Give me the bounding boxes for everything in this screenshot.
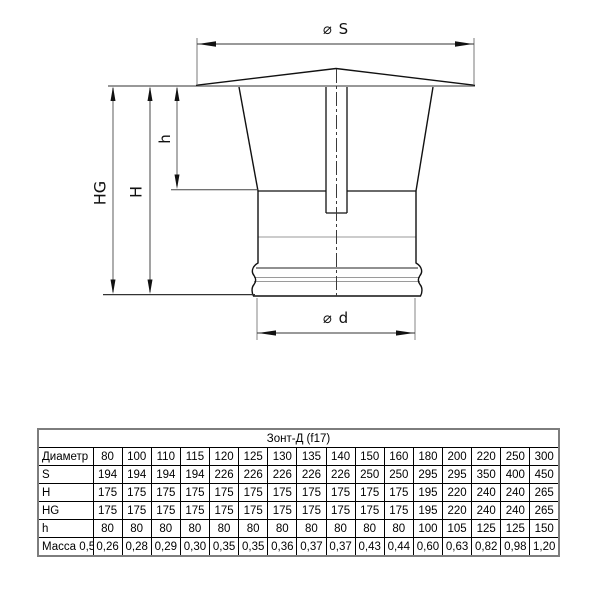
cell-value: 100 — [413, 520, 442, 538]
cell-value: 150 — [355, 448, 384, 466]
cell-value: 175 — [151, 484, 180, 502]
cell-value: 105 — [443, 520, 472, 538]
cell-value: 160 — [384, 448, 413, 466]
cell-value: 110 — [151, 448, 180, 466]
cell-value: 0,35 — [239, 538, 268, 557]
cell-value: 175 — [326, 502, 355, 520]
cell-value: 295 — [413, 466, 442, 484]
cell-value: 226 — [239, 466, 268, 484]
cell-value: 80 — [297, 520, 326, 538]
cell-value: 194 — [93, 466, 122, 484]
cell-value: 194 — [180, 466, 209, 484]
cell-value: 175 — [297, 484, 326, 502]
cell-value: 80 — [268, 520, 297, 538]
cell-value: 0,29 — [151, 538, 180, 557]
cell-value: 250 — [501, 448, 530, 466]
cell-value: 250 — [384, 466, 413, 484]
cell-value: 175 — [180, 502, 209, 520]
dim-hg — [111, 87, 116, 295]
cell-value: 240 — [472, 502, 501, 520]
cell-value: 240 — [501, 502, 530, 520]
cell-value: 400 — [501, 466, 530, 484]
dim-d-label: ⌀ d — [323, 309, 349, 327]
cell-value: 175 — [355, 484, 384, 502]
cell-value: 100 — [122, 448, 151, 466]
cell-value: 80 — [93, 448, 122, 466]
cell-value: 220 — [443, 502, 472, 520]
cell-value: 0,82 — [472, 538, 501, 557]
cell-value: 175 — [122, 502, 151, 520]
table-row: S194194194194226226226226226250250295295… — [38, 466, 559, 484]
cell-value: 150 — [530, 520, 559, 538]
cell-value: 0,98 — [501, 538, 530, 557]
cell-value: 226 — [297, 466, 326, 484]
cell-value: 194 — [151, 466, 180, 484]
cell-value: 175 — [93, 502, 122, 520]
cell-value: 80 — [93, 520, 122, 538]
cell-value: 175 — [297, 502, 326, 520]
cell-value: 226 — [326, 466, 355, 484]
cell-value: 135 — [297, 448, 326, 466]
cell-value: 130 — [268, 448, 297, 466]
cell-value: 175 — [355, 502, 384, 520]
cell-value: 175 — [239, 502, 268, 520]
cell-value: 175 — [239, 484, 268, 502]
cell-value: 195 — [413, 502, 442, 520]
dim-s-label: ⌀ S — [323, 20, 349, 38]
cell-value: 175 — [151, 502, 180, 520]
cell-value: 240 — [472, 484, 501, 502]
cell-value: 80 — [239, 520, 268, 538]
cell-value: 140 — [326, 448, 355, 466]
row-label: HG — [38, 502, 93, 520]
cell-value: 175 — [210, 502, 239, 520]
cell-value: 0,36 — [268, 538, 297, 557]
cell-value: 175 — [326, 484, 355, 502]
cell-value: 295 — [443, 466, 472, 484]
dim-s — [197, 38, 474, 84]
cell-value: 350 — [472, 466, 501, 484]
cell-value: 265 — [530, 502, 559, 520]
cell-value: 180 — [413, 448, 442, 466]
cell-value: 226 — [210, 466, 239, 484]
cell-value: 115 — [180, 448, 209, 466]
cell-value: 0,35 — [210, 538, 239, 557]
cell-value: 0,28 — [122, 538, 151, 557]
cell-value: 0,44 — [384, 538, 413, 557]
product-drawing — [0, 0, 600, 420]
cell-value: 0,30 — [180, 538, 209, 557]
cell-value: 220 — [472, 448, 501, 466]
cell-value: 125 — [472, 520, 501, 538]
row-label: H — [38, 484, 93, 502]
cell-value: 120 — [210, 448, 239, 466]
cell-value: 80 — [210, 520, 239, 538]
cell-value: 80 — [355, 520, 384, 538]
cell-value: 0,60 — [413, 538, 442, 557]
cell-value: 450 — [530, 466, 559, 484]
cell-value: 226 — [268, 466, 297, 484]
cell-value: 80 — [180, 520, 209, 538]
cell-value: 80 — [384, 520, 413, 538]
table-row: h8080808080808080808080100105125125150 — [38, 520, 559, 538]
cell-value: 125 — [239, 448, 268, 466]
table-row: Диаметр801001101151201251301351401501601… — [38, 448, 559, 466]
row-label: h — [38, 520, 93, 538]
umbrella-cap — [108, 69, 475, 87]
row-label: Масса 0,5 — [38, 538, 93, 557]
cell-value: 175 — [210, 484, 239, 502]
cell-value: 1,20 — [530, 538, 559, 557]
cell-value: 175 — [268, 484, 297, 502]
table-row: Масса 0,50,260,280,290,300,350,350,360,3… — [38, 538, 559, 557]
spec-table: Зонт-Д (f17)Диаметр801001101151201251301… — [37, 428, 560, 557]
spec-table-grid: Зонт-Д (f17)Диаметр801001101151201251301… — [37, 428, 560, 557]
cell-value: 80 — [326, 520, 355, 538]
cell-value: 175 — [93, 484, 122, 502]
cell-value: 0,43 — [355, 538, 384, 557]
cell-value: 200 — [443, 448, 472, 466]
cell-value: 250 — [355, 466, 384, 484]
cell-value: 0,26 — [93, 538, 122, 557]
dim-h-label: H — [127, 186, 146, 198]
cell-value: 175 — [122, 484, 151, 502]
cell-value: 0,63 — [443, 538, 472, 557]
cell-value: 220 — [443, 484, 472, 502]
table-row: H175175175175175175175175175175175195220… — [38, 484, 559, 502]
cell-value: 175 — [384, 502, 413, 520]
cell-value: 175 — [384, 484, 413, 502]
dim-h-small-label: h — [156, 134, 174, 144]
row-label: Диаметр — [38, 448, 93, 466]
cell-value: 0,37 — [326, 538, 355, 557]
cell-value: 80 — [151, 520, 180, 538]
cell-value: 265 — [530, 484, 559, 502]
cell-value: 194 — [122, 466, 151, 484]
table-title: Зонт-Д (f17) — [38, 429, 559, 448]
cell-value: 240 — [501, 484, 530, 502]
cell-value: 80 — [122, 520, 151, 538]
dim-hg-label: HG — [91, 181, 110, 205]
cell-value: 0,37 — [297, 538, 326, 557]
cell-value: 300 — [530, 448, 559, 466]
table-row: HG17517517517517517517517517517517519522… — [38, 502, 559, 520]
dim-h-big — [148, 87, 153, 295]
row-label: S — [38, 466, 93, 484]
dim-h-small — [171, 87, 258, 190]
cell-value: 195 — [413, 484, 442, 502]
cell-value: 125 — [501, 520, 530, 538]
page: ⌀ S HG H h ⌀ d Зонт-Д (f17)Диаметр801001… — [0, 0, 600, 589]
cell-value: 175 — [268, 502, 297, 520]
cell-value: 175 — [180, 484, 209, 502]
